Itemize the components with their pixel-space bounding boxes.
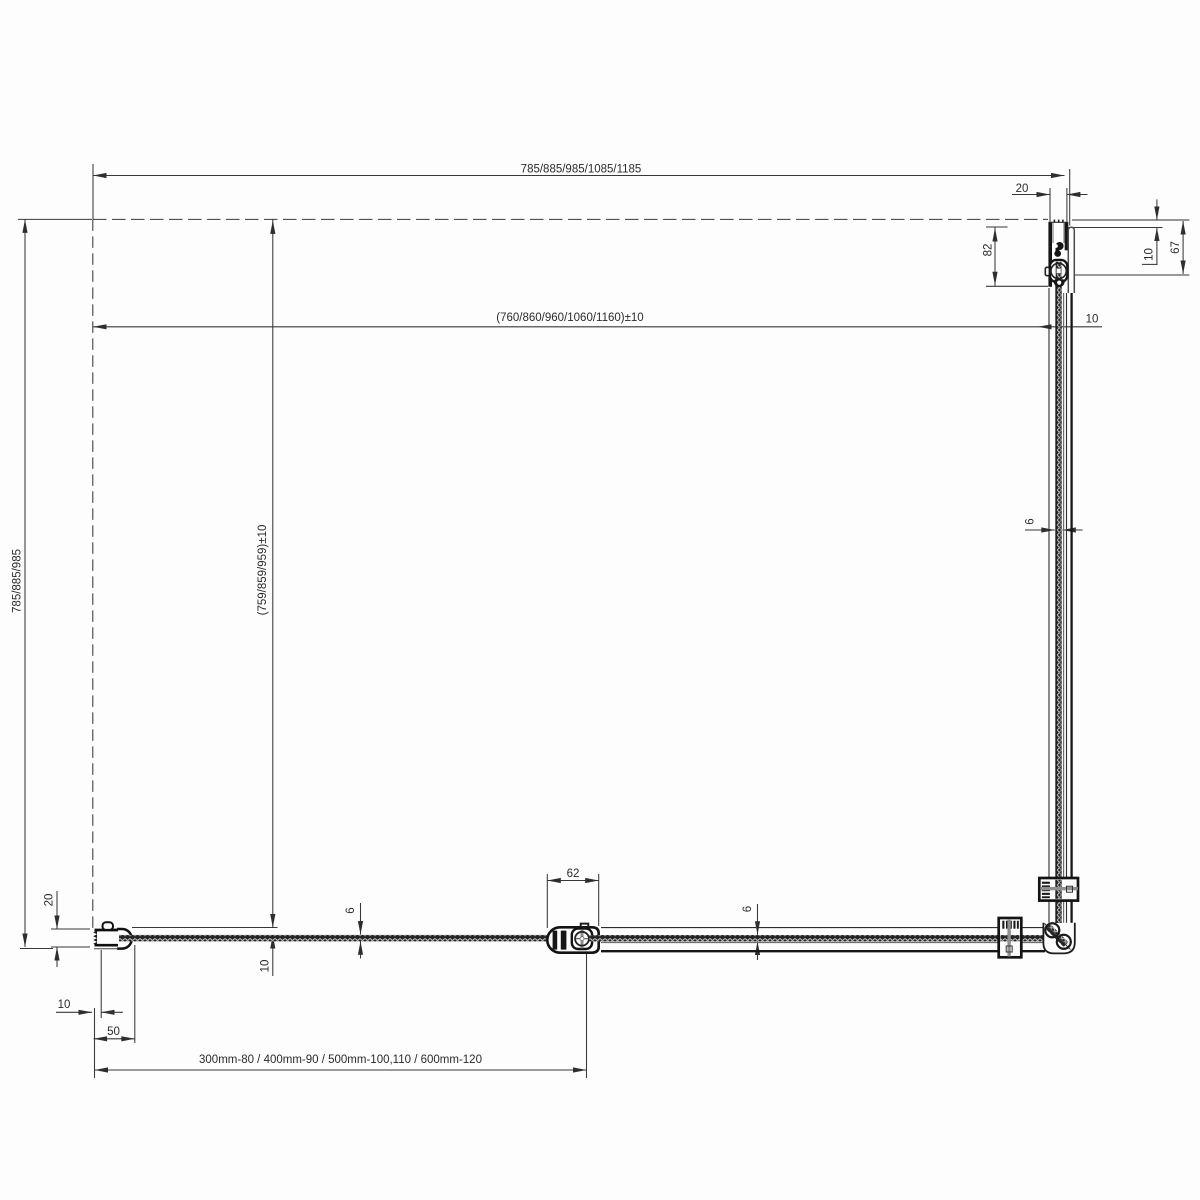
svg-text:20: 20 <box>1016 183 1029 195</box>
svg-text:10: 10 <box>1086 314 1099 326</box>
svg-text:62: 62 <box>567 868 580 880</box>
svg-text:6: 6 <box>742 906 754 912</box>
svg-text:6: 6 <box>345 907 357 913</box>
svg-text:300mm-80 / 400mm-90 / 500mm-10: 300mm-80 / 400mm-90 / 500mm-100,110 / 60… <box>199 1054 482 1066</box>
svg-text:82: 82 <box>983 244 995 257</box>
svg-text:67: 67 <box>1170 241 1182 254</box>
svg-text:10: 10 <box>1144 248 1156 261</box>
svg-text:6: 6 <box>1025 518 1037 524</box>
svg-text:20: 20 <box>44 894 56 907</box>
svg-text:50: 50 <box>107 1026 120 1038</box>
svg-text:10: 10 <box>260 960 272 973</box>
svg-text:785/885/985: 785/885/985 <box>12 549 24 613</box>
svg-text:(760/860/960/1060/1160)±10: (760/860/960/1060/1160)±10 <box>496 312 643 324</box>
svg-text:(759/859/959)±10: (759/859/959)±10 <box>257 525 269 616</box>
svg-text:10: 10 <box>58 999 71 1011</box>
svg-text:785/885/985/1085/1185: 785/885/985/1085/1185 <box>521 164 642 176</box>
